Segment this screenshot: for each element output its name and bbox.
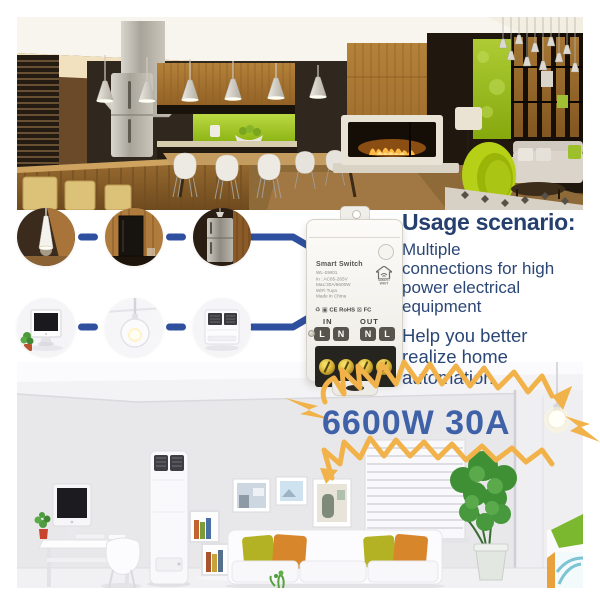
usage-paragraph-1: Multiple connections for high power elec… [402,240,596,316]
terminal-n1: N [333,327,349,341]
usage-heading: Usage scenario: [402,209,596,236]
terminal-screw-4 [376,359,392,375]
certification-row: ♻ ▣ CE RoHS ⊠ FC [315,306,371,313]
weee-bin-icon: ⊠ [357,306,362,313]
appliance-circle-computer [17,298,75,356]
refrigerator-icon [193,208,251,266]
usage-paragraph-2: Help you better realize home automation [402,325,596,388]
terminal-screw-1 [319,359,335,375]
terminal-l1: L [314,327,330,341]
brand-text: SMART WKIT [375,279,393,286]
appliance-circle-pendant-light [105,298,163,356]
usage-scenario-block: Usage scenario: Multiple connections for… [402,209,596,388]
terminal-n2: N [360,327,376,341]
product-infographic: Smart Switch WL-SW01 In : AC85-265V Max:… [0,0,600,600]
livingroom-illustration [17,362,583,588]
appliance-circle-pendant-lamp [17,208,75,266]
shelving-unit [509,33,583,141]
white-sofa [225,530,445,588]
pendant-lamp-icon [17,208,75,266]
recycle-icon: ♻ [315,306,320,313]
house-wifi-icon [376,266,392,279]
mounting-tab-bottom [332,381,378,396]
computer-icon [17,298,75,356]
device-title: Smart Switch [316,261,363,268]
terminal-screw-3 [357,359,373,375]
ce-rohs-marks: CE RoHS [329,306,355,312]
brand-logo: SMART WKIT [371,266,397,289]
mounting-tab-top [340,206,370,220]
television-icon [105,208,163,266]
air-conditioner-icon [193,298,251,356]
appliance-circle-refrigerator [193,208,251,266]
terminal-labels: L N N L [314,327,395,341]
green-backsplash [193,114,295,145]
case-screw [308,330,315,337]
kitchen-illustration [17,17,583,210]
out-label: OUT [360,317,379,326]
terminal-l2: L [379,327,395,341]
pendant-light-icon [105,298,163,356]
appliance-circle-television [105,208,163,266]
power-rating-label: 6600W 30A [322,404,582,443]
appliance-circle-air-conditioner [193,298,251,356]
terminal-screw-2 [338,359,354,375]
fireplace [333,115,459,173]
floor-ac-unit [147,451,191,587]
box-icon: ▣ [322,306,328,313]
sofa [509,141,583,183]
status-led [378,244,394,260]
window [361,440,469,543]
case-seam [309,237,400,238]
top-photo-kitchen [17,17,583,210]
smart-switch-device: Smart Switch WL-SW01 In : AC85-265V Max:… [306,206,403,396]
bottom-photo-livingroom [17,362,583,588]
in-label: IN [323,317,333,326]
fcc-mark: FC [364,306,372,312]
switch-body: Smart Switch WL-SW01 In : AC85-265V Max:… [306,219,403,382]
